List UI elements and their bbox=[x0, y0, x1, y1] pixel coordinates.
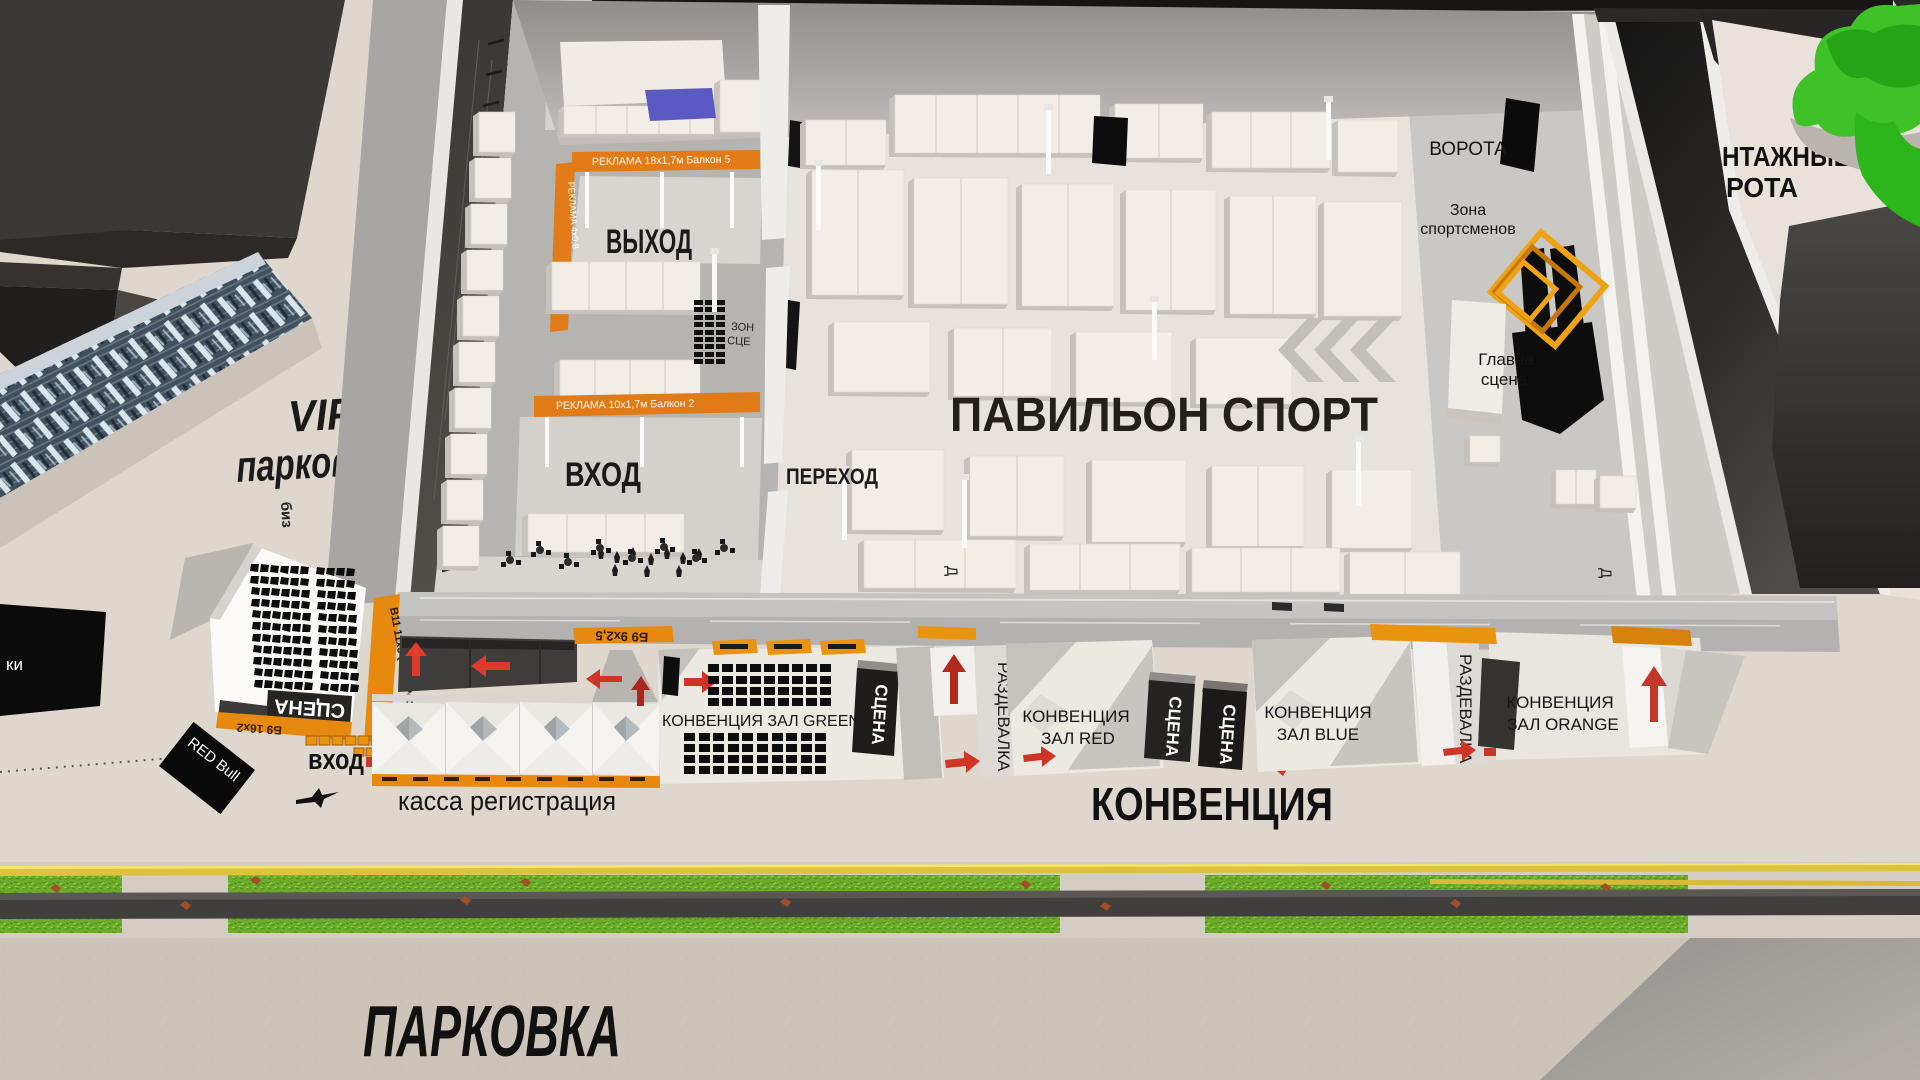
svg-text:РОТА: РОТА bbox=[1726, 172, 1798, 203]
svg-text:спортсменов: спортсменов bbox=[1420, 221, 1515, 238]
svg-text:РЕКЛАМА 18х1,7м Балкон 5: РЕКЛАМА 18х1,7м Балкон 5 bbox=[592, 154, 731, 168]
svg-text:ЗОН: ЗОН bbox=[731, 321, 755, 334]
svg-text:Б9 9х2,5: Б9 9х2,5 bbox=[595, 628, 648, 645]
svg-text:КОНВЕНЦИЯ: КОНВЕНЦИЯ bbox=[1264, 703, 1371, 722]
svg-text:Д: Д bbox=[943, 566, 960, 577]
svg-text:касса регистрация: касса регистрация bbox=[398, 786, 616, 816]
svg-text:биз: биз bbox=[277, 501, 295, 528]
svg-text:ПЕРЕХОД: ПЕРЕХОД bbox=[786, 464, 878, 489]
svg-text:Главна: Главна bbox=[1478, 350, 1534, 369]
svg-text:ЗАЛ ORANGE: ЗАЛ ORANGE bbox=[1507, 715, 1619, 734]
svg-text:вход: вход bbox=[308, 744, 364, 776]
svg-text:РЕКЛАМА 10х1,7м Балкон 2: РЕКЛАМА 10х1,7м Балкон 2 bbox=[556, 398, 695, 412]
svg-text:ки: ки bbox=[6, 655, 23, 674]
svg-text:КОНВЕНЦИЯ: КОНВЕНЦИЯ bbox=[1091, 778, 1333, 830]
svg-text:ПАРКОВКА: ПАРКОВКА bbox=[363, 992, 621, 1072]
svg-text:ВЫХОД: ВЫХОД bbox=[606, 223, 692, 261]
svg-text:ЗАЛ RED: ЗАЛ RED bbox=[1041, 729, 1115, 748]
svg-text:КОНВЕНЦИЯ: КОНВЕНЦИЯ bbox=[1506, 693, 1613, 712]
svg-text:ЗАЛ BLUE: ЗАЛ BLUE bbox=[1277, 725, 1359, 744]
svg-text:Зона: Зона bbox=[1450, 202, 1486, 219]
svg-text:ВОРОТА: ВОРОТА bbox=[1429, 139, 1507, 160]
svg-text:СЦЕ: СЦЕ bbox=[727, 335, 751, 348]
svg-text:сцена: сцена bbox=[1481, 370, 1528, 389]
svg-text:КОНВЕНЦИЯ ЗАЛ GREEN: КОНВЕНЦИЯ ЗАЛ GREEN bbox=[662, 713, 860, 730]
svg-text:ВХОД: ВХОД bbox=[565, 456, 641, 494]
svg-text:КОНВЕНЦИЯ: КОНВЕНЦИЯ bbox=[1022, 707, 1129, 726]
svg-text:Д: Д bbox=[1597, 568, 1614, 579]
svg-text:ПАВИЛЬОН СПОРТ: ПАВИЛЬОН СПОРТ bbox=[950, 389, 1378, 442]
